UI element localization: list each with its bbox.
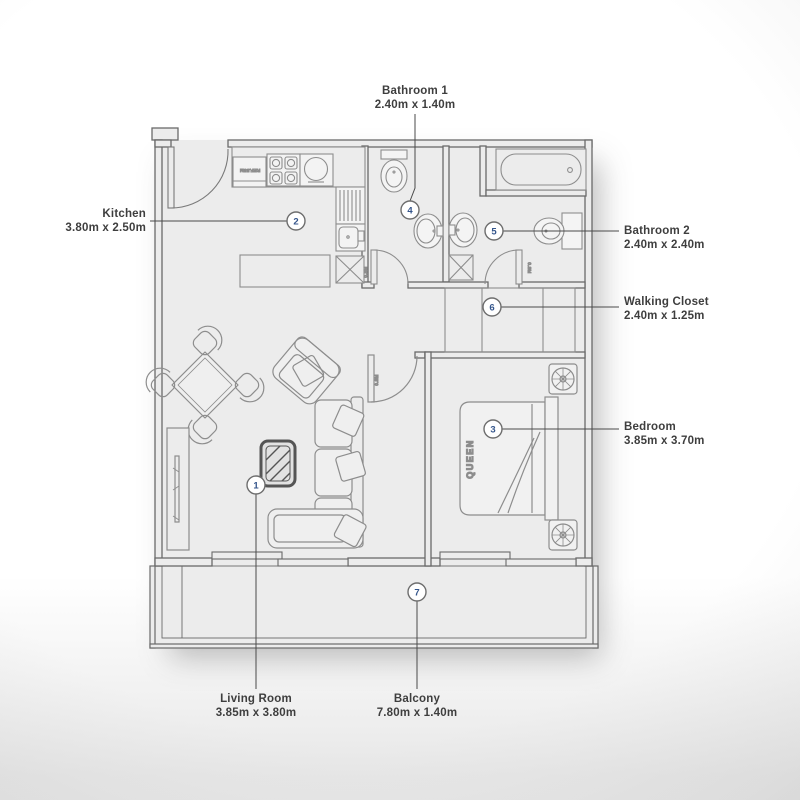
label-walking-closet-name: Walking Closet [624, 295, 709, 309]
washbasin-bathroom2 [449, 213, 477, 247]
nightstand-bottom [549, 520, 577, 550]
label-bathroom1-dims: 2.40m x 1.40m [335, 98, 495, 112]
label-living-room-dims: 3.85m x 3.80m [176, 706, 336, 720]
svg-text:7: 7 [414, 588, 419, 599]
label-bathroom1-name: Bathroom 1 [335, 84, 495, 98]
toilet-bathroom1 [381, 150, 407, 192]
entrance-door-leaf [168, 147, 174, 208]
label-bedroom-dims: 3.85m x 3.70m [624, 434, 705, 448]
balcony-wall-right [593, 566, 598, 648]
bedroom-door-size: 0.8M [374, 374, 379, 385]
callout-3-bedroom: 3 [484, 420, 502, 438]
callout-2-kitchen: 2 [287, 212, 305, 230]
bathroom1-door-size: 0.8M [363, 266, 368, 277]
svg-text:6: 6 [489, 303, 494, 314]
wall-under-tub [486, 190, 586, 196]
label-bathroom2-name: Bathroom 2 [624, 224, 705, 238]
wall-vanity [443, 146, 449, 282]
bathtub [496, 149, 586, 190]
wall-bottom-right [576, 558, 592, 566]
label-kitchen-name: Kitchen [0, 207, 146, 221]
bedroom-slider-panel-2 [506, 559, 576, 566]
wall-bath2-left [480, 146, 486, 196]
floor-plan-canvas: REF.55M [0, 0, 800, 800]
wall-bedroom-top [425, 352, 585, 358]
label-bathroom1: Bathroom 1 2.40m x 1.40m [335, 84, 495, 112]
label-bathroom2: Bathroom 2 2.40m x 2.40m [624, 224, 705, 252]
service-shaft-bath [449, 255, 473, 280]
washbasin-bathroom1 [414, 214, 443, 248]
kitchen-round-sink [300, 154, 333, 186]
bedroom-slider-panel-1 [440, 552, 510, 559]
svg-text:1: 1 [253, 481, 259, 492]
kitchen-island-counter [240, 255, 330, 287]
label-bedroom-name: Bedroom [624, 420, 705, 434]
label-kitchen: Kitchen 3.80m x 2.50m [0, 207, 146, 235]
svg-text:2: 2 [293, 217, 298, 228]
label-balcony-name: Balcony [337, 692, 497, 706]
service-shaft-kitchen [336, 256, 364, 283]
label-bathroom2-dims: 2.40m x 2.40m [624, 238, 705, 252]
bed: QUEEN [460, 397, 558, 520]
label-balcony-dims: 7.80m x 1.40m [337, 706, 497, 720]
living-slider-panel-1 [212, 552, 282, 559]
bed-headboard [545, 397, 558, 520]
label-kitchen-dims: 3.80m x 2.50m [0, 221, 146, 235]
wall-bottom-left [155, 558, 212, 566]
label-living-room-name: Living Room [176, 692, 336, 706]
balcony-wall-left [150, 566, 155, 648]
tv-console [167, 428, 189, 550]
callout-6-walking-closet: 6 [483, 298, 501, 316]
drying-rack [336, 187, 365, 224]
kitchen-sink [336, 224, 365, 251]
label-walking-closet-dims: 2.40m x 1.25m [624, 309, 709, 323]
floor-plan-drawing: REF.55M [0, 0, 800, 800]
svg-text:4: 4 [407, 206, 413, 217]
label-bedroom: Bedroom 3.85m x 3.70m [624, 420, 705, 448]
callout-5-bathroom2: 5 [485, 222, 503, 240]
bed-size-label: QUEEN [465, 439, 475, 479]
nightstand-top [549, 364, 577, 394]
wall-top [228, 140, 592, 147]
svg-text:3: 3 [490, 425, 495, 436]
callout-4-bathroom1: 4 [401, 201, 419, 219]
callout-7-balcony: 7 [408, 583, 426, 601]
stove [267, 154, 300, 186]
wall-bedroom-west [425, 352, 431, 566]
wall-bath-row-c [519, 282, 585, 288]
balcony-wall-bottom [150, 644, 598, 648]
svg-text:5: 5 [491, 227, 497, 238]
label-balcony: Balcony 7.80m x 1.40m [337, 692, 497, 720]
fridge-label: REF.55M [240, 168, 261, 173]
label-walking-closet: Walking Closet 2.40m x 1.25m [624, 295, 709, 323]
bathroom2-door-size: 0.8M [527, 262, 532, 273]
callout-1-living-room: 1 [247, 476, 265, 494]
wall-top-left [155, 140, 171, 147]
wall-right [585, 140, 592, 566]
wall-bath-row-b [408, 282, 488, 288]
label-living-room: Living Room 3.85m x 3.80m [176, 692, 336, 720]
living-slider-panel-2 [278, 559, 348, 566]
coffee-table [261, 441, 295, 486]
wall-step-top-left [152, 128, 178, 140]
wall-left [155, 140, 162, 566]
